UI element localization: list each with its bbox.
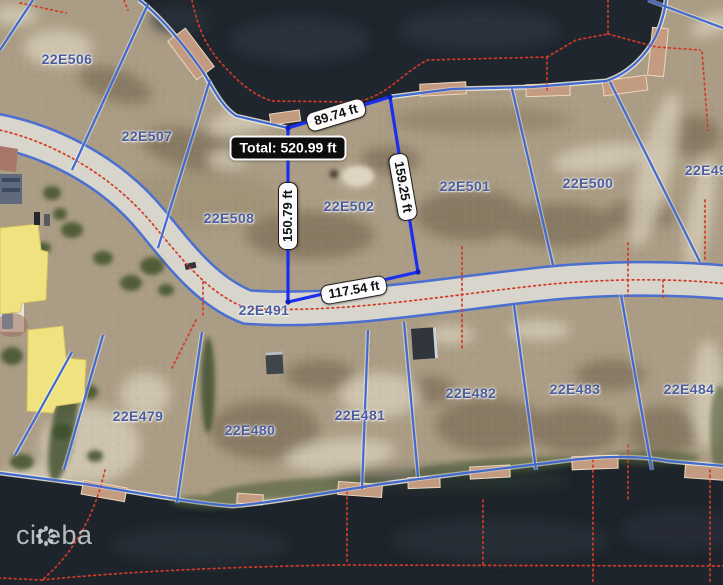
aerial-map-canvas[interactable]: 22E506 22E507 22E508 22E502 22E501 22E50… — [0, 0, 723, 585]
aerial-imagery — [0, 0, 723, 585]
